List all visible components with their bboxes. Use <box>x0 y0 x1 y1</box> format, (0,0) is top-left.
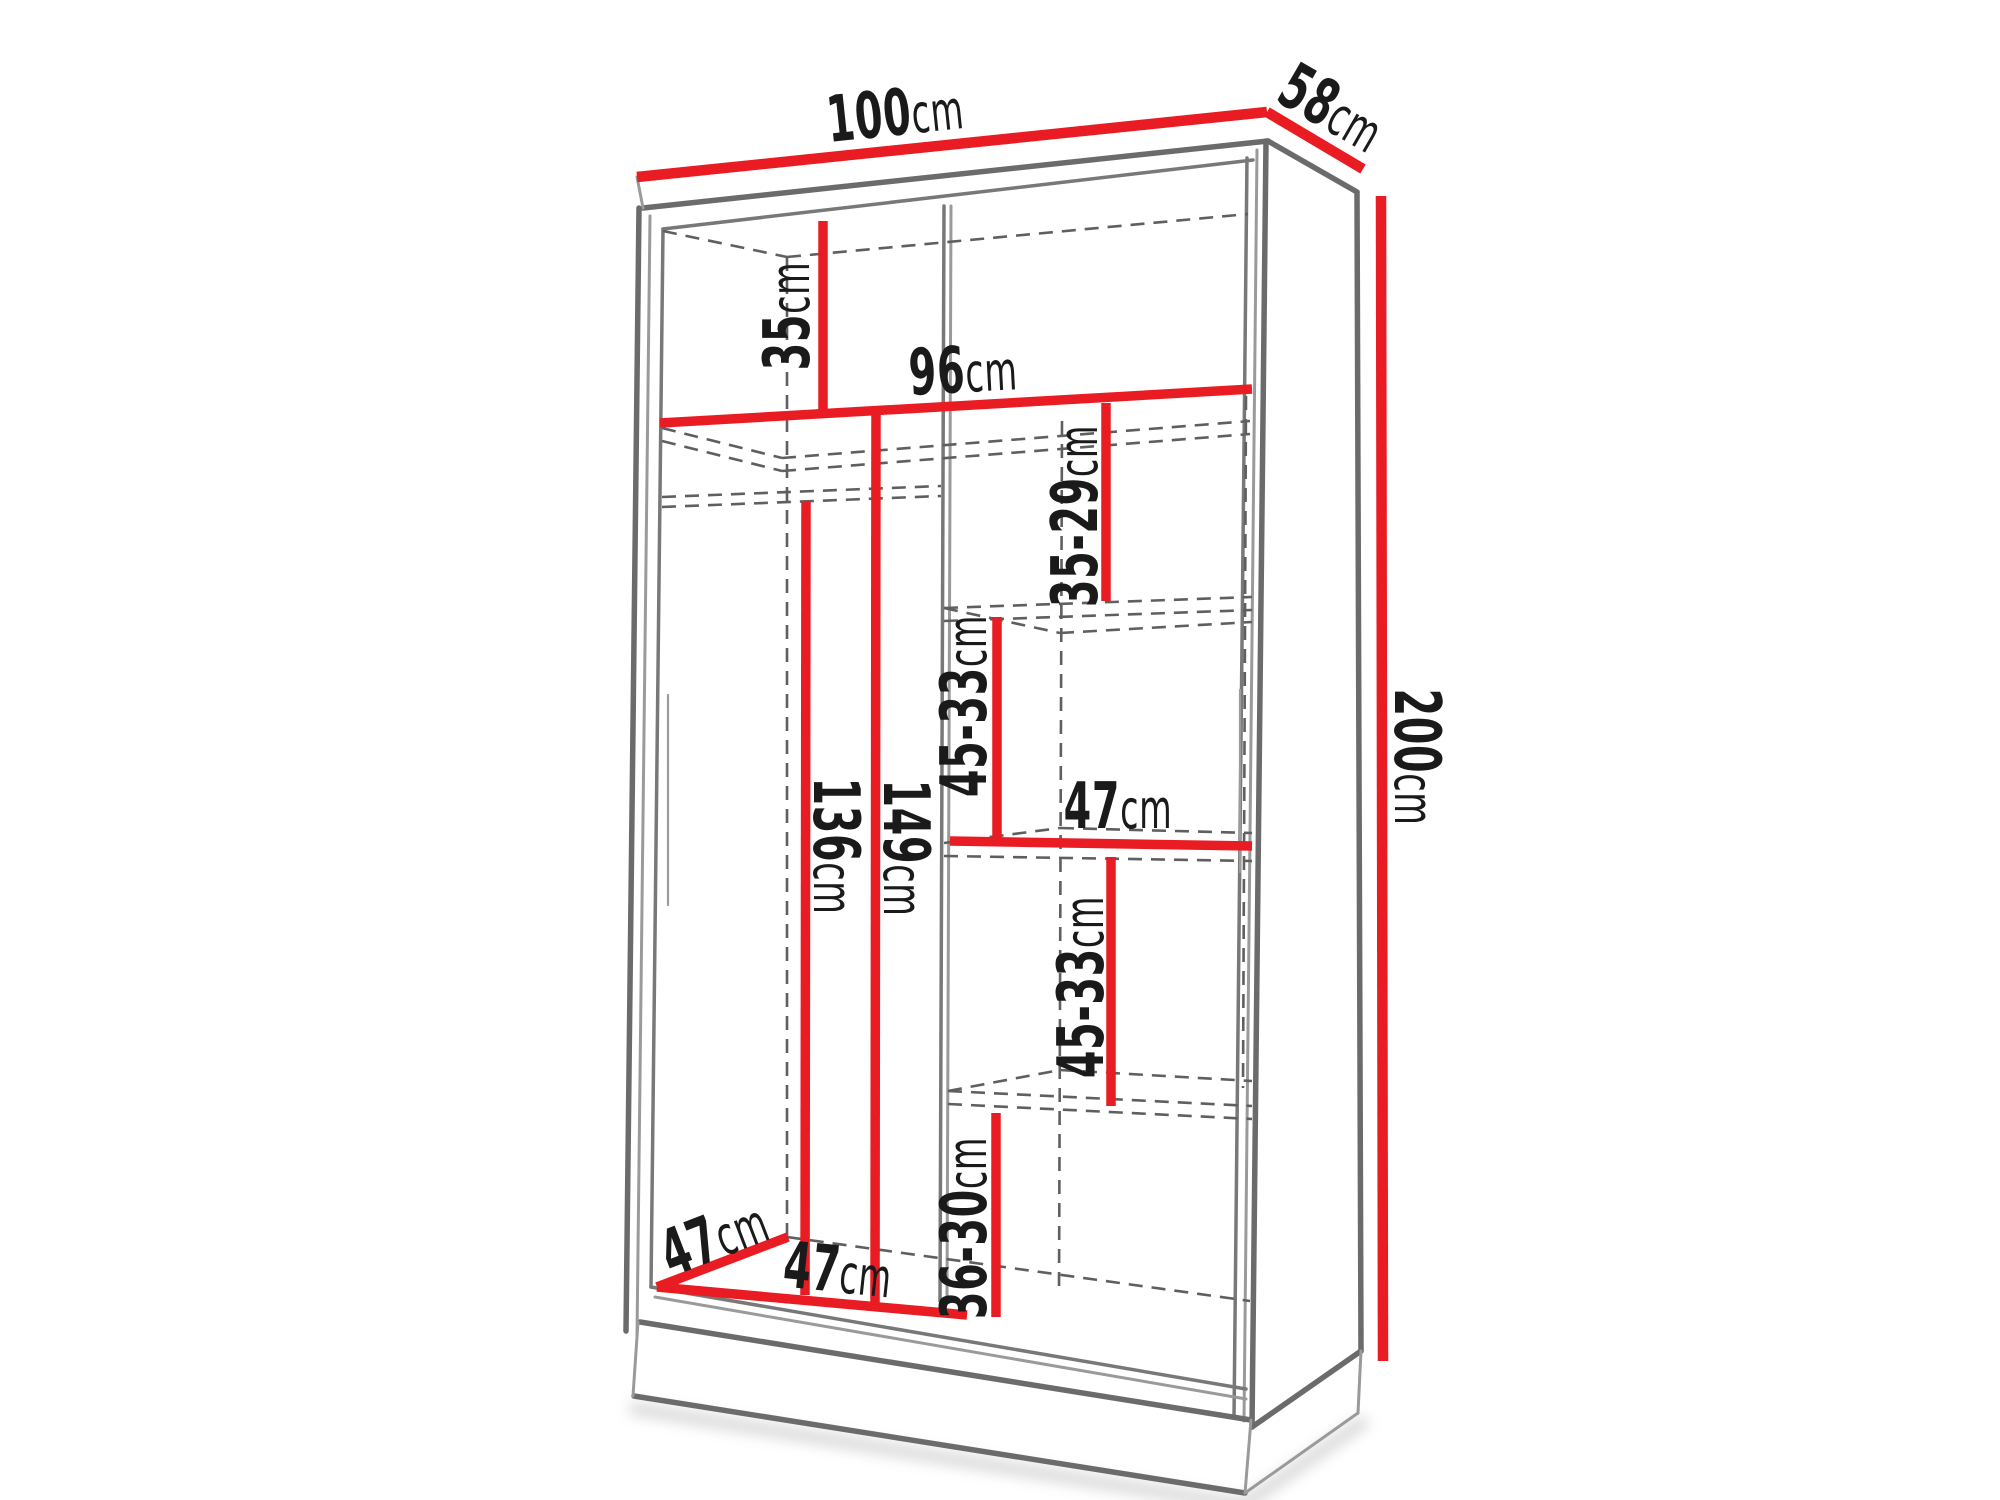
diagram-canvas: 100cm 58cm 200cm 35cm 96cm 35-29cm 45-33… <box>0 0 2000 1500</box>
dimension-label-middle-gap-upper: 45-33cm <box>927 615 1002 797</box>
dimension-label-hanging-height: 136cm <box>798 778 873 915</box>
dimension-label-top-shelf: 35cm <box>750 262 825 371</box>
dimension-label-height-right: 200cm <box>1379 689 1454 826</box>
dimension-label-bottom-gap: 36-30cm <box>927 1137 1002 1319</box>
top-shelf-depth-edge-2 <box>662 441 782 471</box>
plinth-bottom-edge <box>634 1396 1245 1493</box>
dimension-label-interior-width: 96cm <box>907 330 1019 410</box>
dimension-label-interior-height: 149cm <box>868 780 943 917</box>
shelf3-front-edge-2 <box>944 856 1252 861</box>
plinth-side-back-edge <box>1358 1351 1361 1413</box>
ceiling-depth-edge <box>663 231 787 257</box>
shelf4-front-edge <box>948 1091 1252 1106</box>
shelf2-back-edge <box>1060 622 1252 633</box>
hanging-rod-top <box>662 486 941 497</box>
ceiling-back-edge <box>787 214 1248 257</box>
left-outer-edge <box>626 208 639 1331</box>
plinth-right-corner <box>1245 1420 1251 1493</box>
dimension-label-middle-gap-lower: 45-33cm <box>1044 896 1119 1078</box>
dimension-lines <box>637 112 1383 1361</box>
wardrobe-dimension-diagram: 100cm 58cm 200cm 35cm 96cm 35-29cm 45-33… <box>0 0 2000 1500</box>
dimension-label-interior-depth: 47cm <box>650 1183 778 1292</box>
plinth-left-edge <box>633 1322 638 1396</box>
top-shelf-depth-edge <box>662 428 782 458</box>
back-right-edge <box>1357 192 1361 1351</box>
left-interior-face <box>651 229 663 1287</box>
plinth-side-bottom-edge <box>1245 1413 1358 1493</box>
dimension-labels: 100cm 58cm 200cm 35cm 96cm 35-29cm 45-33… <box>650 49 1454 1319</box>
right-side-bottom-edge <box>1252 1351 1361 1427</box>
dimension-label-middle-shelf-width: 47cm <box>1064 769 1173 844</box>
top-front-edge <box>643 141 1268 208</box>
dimension-label-upper-gap: 35-29cm <box>1038 425 1113 607</box>
